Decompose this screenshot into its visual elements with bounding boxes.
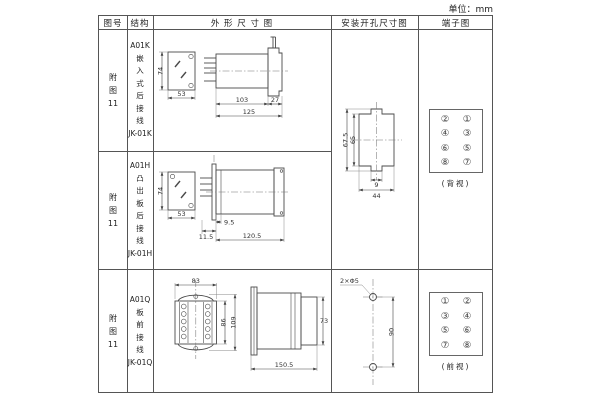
- terminal-pin: ⑦: [441, 341, 450, 351]
- dim-label: 86: [220, 318, 228, 326]
- terminal-pin: ③: [441, 312, 450, 322]
- mounting-drawing-rear: 67.5 65 9 44: [335, 94, 415, 204]
- row3-figure-cell: 附 图 11: [99, 269, 127, 394]
- mounting-cell-rear: 67.5 65 9 44: [331, 29, 418, 269]
- terminal-pin: ⑤: [463, 144, 472, 154]
- a01q-front-view: 83 86 109: [175, 277, 238, 359]
- row3-structure: A01Q 板 前 接 线 JK-01Q: [128, 294, 153, 369]
- row1-structure: A01K 嵌 入 式 后 接 线 JK-01K: [128, 40, 152, 140]
- mounting-cell-front: 2×Φ5 90: [331, 269, 418, 394]
- row2-structure: A01H 凸 出 板 后 接 线 JK-01H: [128, 160, 152, 260]
- dim-label: 74: [157, 67, 165, 75]
- terminal-pin: ⑧: [463, 341, 472, 351]
- header-terminal: 端子图: [418, 16, 494, 29]
- spec-table: 图号 结构 外 形 尺 寸 图 安装开孔尺寸图 端子图 附 图 11 A01K …: [98, 15, 493, 393]
- mounting-drawing-front: 2×Φ5 90: [335, 273, 415, 391]
- row1-outline-cell: 74 53: [153, 29, 331, 151]
- terminal-caption-rear: (背视): [442, 178, 471, 189]
- dim-label: 74: [157, 187, 165, 195]
- header-outline: 外 形 尺 寸 图: [153, 16, 331, 29]
- dim-label: 44: [372, 192, 380, 200]
- terminal-pin: ⑥: [463, 326, 472, 336]
- terminal-pin: ③: [463, 129, 472, 139]
- dim-label: 103: [236, 96, 248, 104]
- row3-figure: 附 图 11: [108, 312, 118, 351]
- terminal-pin: ④: [441, 129, 450, 139]
- row2-figure-cell: 附 图 11: [99, 151, 127, 269]
- dim-label: 73: [320, 317, 328, 325]
- outline-drawing-a01k: 74 53: [156, 34, 328, 146]
- terminal-diagram-rear: ② ① ④ ③ ⑥ ⑤ ⑧ ⑦ (背视): [429, 109, 483, 189]
- header-figure: 图号: [99, 16, 127, 29]
- dim-label: 9.5: [224, 219, 234, 227]
- dim-label: 9: [374, 181, 378, 189]
- terminal-diagram-front: ① ② ③ ④ ⑤ ⑥ ⑦ ⑧ (前视): [429, 292, 483, 372]
- row2-structure-cell: A01H 凸 出 板 后 接 线 JK-01H: [127, 151, 153, 269]
- outline-drawing-a01h: 74 53 9.: [156, 154, 328, 266]
- header-structure: 结构: [127, 16, 153, 29]
- row3-outline-cell: 83 86 109 73: [153, 269, 331, 394]
- a01k-front-view: 74 53: [157, 52, 196, 100]
- dim-label: 65: [349, 136, 357, 144]
- row3-structure-cell: A01Q 板 前 接 线 JK-01Q: [127, 269, 153, 394]
- terminal-pin: ⑤: [441, 326, 450, 336]
- a01h-side-view: 9.5 11.5 120.5: [199, 155, 290, 242]
- a01q-side-view: 73 150.5: [251, 287, 328, 371]
- row2-figure: 附 图 11: [108, 191, 118, 230]
- row1-structure-cell: A01K 嵌 入 式 后 接 线 JK-01K: [127, 29, 153, 151]
- terminal-cell-rear: ② ① ④ ③ ⑥ ⑤ ⑧ ⑦ (背视): [418, 29, 494, 269]
- dim-label: 83: [192, 277, 200, 285]
- unit-label: 单位：mm: [418, 2, 493, 15]
- terminal-box: ① ② ③ ④ ⑤ ⑥ ⑦ ⑧: [429, 292, 483, 356]
- dim-label: 27: [271, 96, 279, 104]
- header-mounting: 安装开孔尺寸图: [331, 16, 418, 29]
- dim-label: 11.5: [199, 233, 213, 241]
- hole-callout: 2×Φ5: [340, 277, 359, 285]
- dim-label: 109: [230, 316, 238, 328]
- dim-label: 150.5: [275, 361, 294, 369]
- terminal-pin: ①: [441, 297, 450, 307]
- terminal-pin: ①: [463, 115, 472, 125]
- outline-drawing-a01q: 83 86 109 73: [153, 271, 331, 393]
- terminal-pin: ⑧: [441, 158, 450, 168]
- terminal-box: ② ① ④ ③ ⑥ ⑤ ⑧ ⑦: [429, 109, 483, 173]
- row1-figure: 附 图 11: [108, 71, 118, 110]
- a01h-front-view: 74 53: [157, 172, 196, 220]
- row1-figure-cell: 附 图 11: [99, 29, 127, 151]
- terminal-pin: ⑥: [441, 144, 450, 154]
- dim-label: 90: [387, 327, 395, 335]
- dim-label: 53: [177, 90, 185, 98]
- terminal-pin: ⑦: [463, 158, 472, 168]
- dim-label: 120.5: [243, 232, 262, 240]
- terminal-cell-front: ① ② ③ ④ ⑤ ⑥ ⑦ ⑧ (前视): [418, 269, 494, 394]
- dim-label: 53: [177, 210, 185, 218]
- row2-outline-cell: 74 53 9.: [153, 151, 331, 269]
- terminal-caption-front: (前视): [442, 361, 471, 372]
- dim-label: 125: [243, 108, 255, 116]
- terminal-pin: ④: [463, 312, 472, 322]
- terminal-pin: ②: [463, 297, 472, 307]
- terminal-pin: ②: [441, 115, 450, 125]
- a01k-side-view: 103 27 125: [204, 37, 288, 118]
